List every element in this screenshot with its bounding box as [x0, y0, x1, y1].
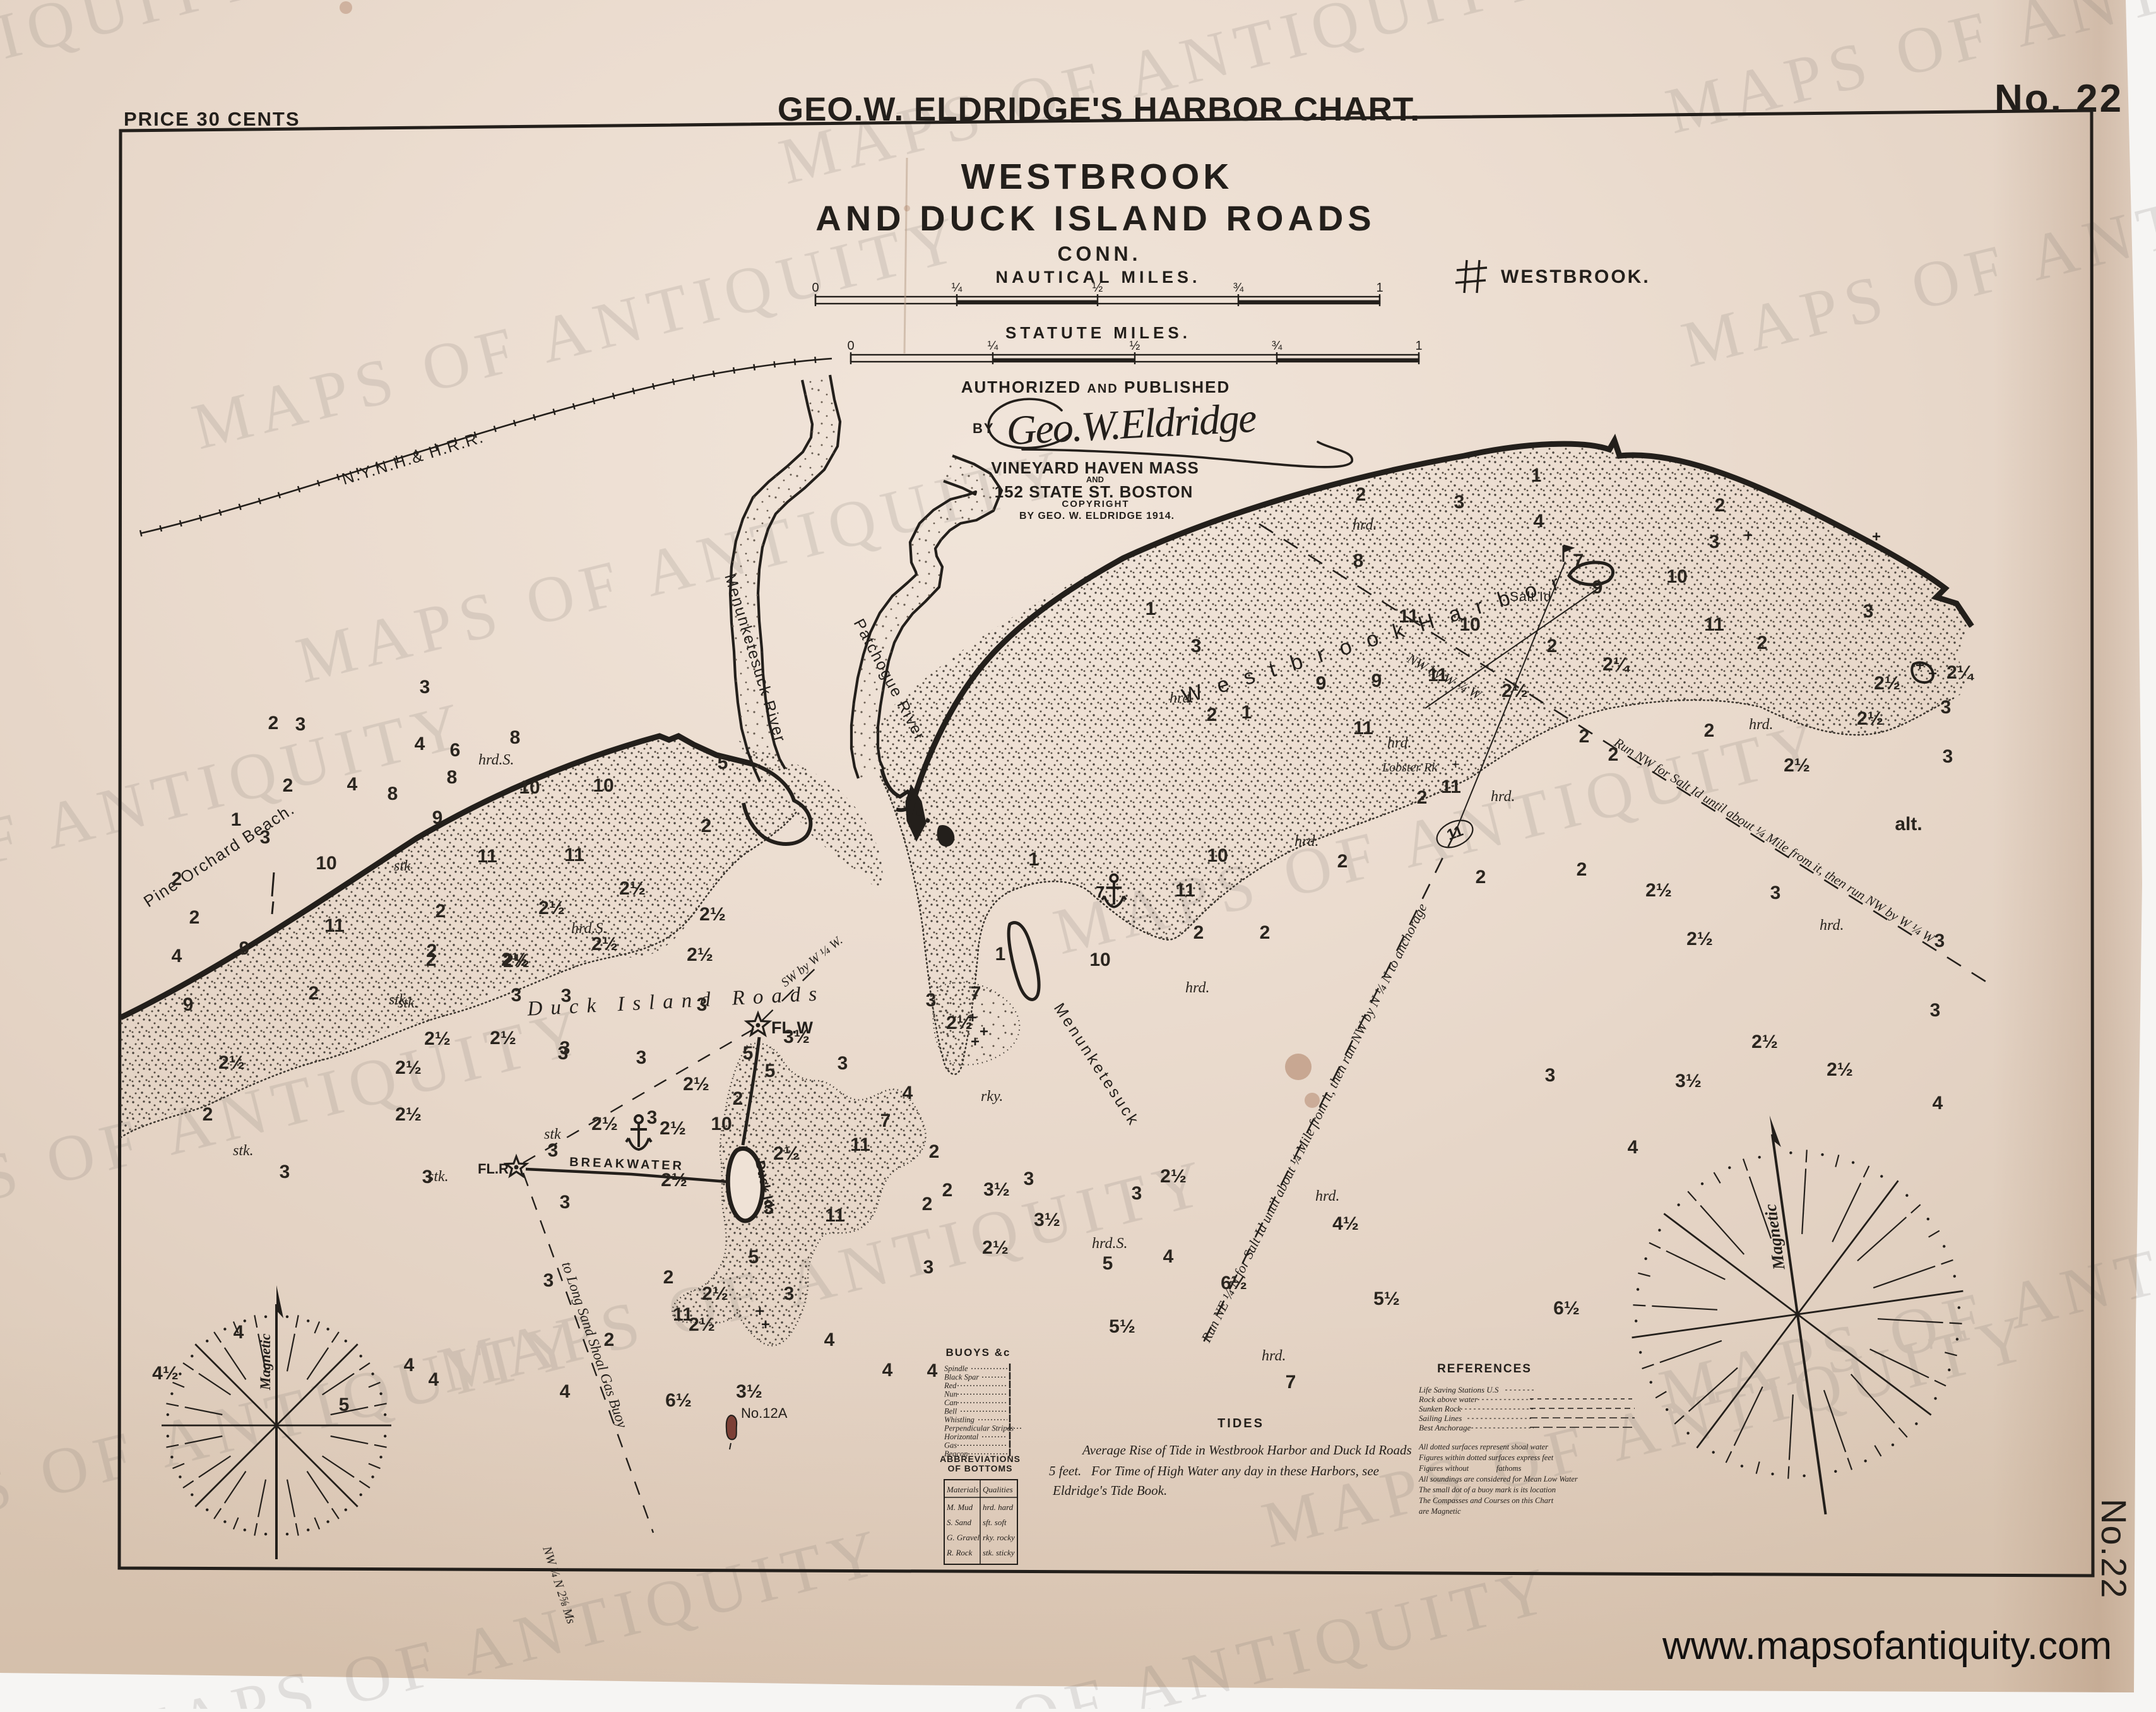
svg-text:4: 4: [1933, 1093, 1943, 1114]
svg-text:stk.: stk.: [389, 992, 410, 1008]
svg-text:10: 10: [316, 853, 336, 874]
svg-text:alt.: alt.: [1895, 814, 1922, 835]
svg-text:3: 3: [1863, 601, 1874, 622]
svg-text:3: 3: [1709, 532, 1720, 552]
svg-text:3½: 3½: [1675, 1071, 1702, 1091]
svg-text:Figures without f: Figures without fathoms: [1418, 1464, 1522, 1473]
svg-text:5 feet. For Time of High Wat: 5 feet. For Time of High Water any day i…: [1049, 1463, 1379, 1478]
svg-text:1: 1: [1415, 339, 1422, 353]
svg-text:6½: 6½: [665, 1390, 692, 1411]
svg-text:¼: ¼: [952, 281, 962, 295]
svg-text:rky.: rky.: [981, 1088, 1003, 1105]
svg-text:2: 2: [283, 775, 293, 796]
svg-text:3: 3: [1934, 930, 1945, 951]
svg-text:11: 11: [1175, 880, 1195, 901]
svg-text:hrd.: hrd.: [1820, 917, 1844, 934]
svg-text:Best Anchorage: Best Anchorage: [1419, 1423, 1471, 1432]
svg-text:Average Rise of Tide in Westbr: Average Rise of Tide in Westbrook Harbor…: [1081, 1442, 1412, 1458]
svg-text:Salt Id: Salt Id: [1510, 590, 1552, 604]
svg-text:¼: ¼: [988, 339, 998, 353]
svg-text:3: 3: [923, 1257, 934, 1278]
svg-text:3½: 3½: [783, 1026, 810, 1047]
svg-text:7: 7: [1096, 883, 1105, 901]
svg-text:4: 4: [903, 1083, 913, 1103]
svg-text:6½: 6½: [1221, 1273, 1247, 1293]
svg-text:hrd.S.: hrd.S.: [571, 920, 607, 937]
svg-text:3: 3: [1132, 1183, 1142, 1204]
svg-text:2½: 2½: [702, 1283, 728, 1304]
svg-text:11: 11: [1428, 665, 1448, 686]
svg-text:2: 2: [1417, 787, 1428, 808]
svg-text:2: 2: [203, 1104, 213, 1125]
svg-text:8: 8: [388, 783, 398, 804]
svg-text:9: 9: [1316, 673, 1327, 694]
svg-text:No.22: No.22: [2094, 1499, 2134, 1599]
svg-text:2: 2: [1579, 726, 1590, 747]
svg-text:TIDES: TIDES: [1217, 1417, 1264, 1430]
svg-text:REFERENCES: REFERENCES: [1437, 1362, 1532, 1376]
svg-text:Nun: Nun: [944, 1390, 957, 1399]
svg-text:3: 3: [1191, 636, 1202, 657]
svg-text:stk: stk: [394, 858, 411, 874]
svg-text:4: 4: [882, 1360, 893, 1381]
svg-text:BUOYS &c: BUOYS &c: [946, 1346, 1011, 1358]
svg-text:2½: 2½: [1645, 880, 1672, 901]
svg-text:2: 2: [1547, 636, 1558, 657]
svg-text:7: 7: [1286, 1372, 1296, 1393]
svg-text:2: 2: [1704, 720, 1715, 741]
svg-text:8: 8: [447, 767, 458, 788]
svg-text:2: 2: [604, 1329, 615, 1350]
svg-text:5½: 5½: [1373, 1288, 1400, 1309]
svg-text:3: 3: [1454, 492, 1465, 513]
svg-text:2½: 2½: [501, 949, 528, 970]
svg-text:3: 3: [1770, 883, 1781, 903]
svg-text:5: 5: [749, 1247, 759, 1268]
svg-text:S. Sand: S. Sand: [947, 1518, 972, 1527]
svg-text:+: +: [1744, 527, 1753, 544]
svg-text:¾: ¾: [1233, 281, 1244, 295]
svg-text:Gas: Gas: [944, 1441, 957, 1450]
svg-text:WESTBROOK.: WESTBROOK.: [1501, 266, 1650, 287]
svg-text:FL.R: FL.R: [478, 1161, 509, 1177]
svg-text:10: 10: [1089, 949, 1110, 970]
svg-text:11: 11: [1704, 614, 1724, 635]
svg-text:2½: 2½: [1784, 755, 1810, 776]
svg-text:stk.: stk.: [233, 1143, 254, 1159]
svg-text:2½: 2½: [1874, 673, 1900, 694]
svg-text:4: 4: [347, 774, 358, 795]
svg-text:2½: 2½: [660, 1118, 686, 1139]
svg-text:Eldridge's Tide Book.: Eldridge's Tide Book.: [1052, 1483, 1167, 1498]
svg-text:3: 3: [697, 994, 708, 1015]
svg-text:1: 1: [995, 944, 1006, 965]
svg-text:4: 4: [824, 1329, 835, 1350]
svg-text:hrd.: hrd.: [1387, 735, 1411, 751]
svg-text:Spindle: Spindle: [944, 1364, 968, 1373]
svg-text:2½: 2½: [591, 1114, 618, 1134]
svg-text:1: 1: [1531, 465, 1542, 486]
svg-text:5: 5: [1103, 1253, 1113, 1274]
svg-text:4½: 4½: [152, 1363, 179, 1384]
svg-text:2½: 2½: [1827, 1059, 1853, 1080]
svg-text:1: 1: [231, 809, 242, 830]
svg-text:9: 9: [1371, 670, 1382, 691]
svg-text:11: 11: [1441, 776, 1461, 797]
svg-text:2¼: 2¼: [1946, 662, 1975, 683]
svg-text:9: 9: [183, 994, 194, 1015]
svg-text:Black Spar: Black Spar: [944, 1373, 979, 1382]
svg-text:3: 3: [548, 1140, 559, 1161]
svg-text:No. 22: No. 22: [1994, 77, 2123, 121]
svg-text:6½: 6½: [1553, 1298, 1580, 1319]
svg-text:2: 2: [663, 1267, 674, 1288]
svg-text:+: +: [971, 1033, 980, 1050]
svg-text:3: 3: [558, 1043, 569, 1064]
svg-text:11: 11: [825, 1205, 845, 1226]
svg-text:2½: 2½: [773, 1143, 800, 1164]
svg-text:3: 3: [647, 1107, 658, 1128]
svg-text:9: 9: [432, 807, 443, 828]
svg-text:2½: 2½: [687, 944, 713, 965]
svg-text:2: 2: [1757, 633, 1768, 653]
svg-text:Qualities: Qualities: [983, 1485, 1013, 1494]
svg-text:2: 2: [189, 907, 200, 928]
svg-text:4: 4: [172, 946, 182, 966]
svg-text:2: 2: [1476, 867, 1486, 888]
svg-text:3: 3: [280, 1162, 290, 1182]
svg-text:2: 2: [1337, 851, 1348, 872]
svg-text:8: 8: [510, 727, 521, 748]
svg-text:11: 11: [673, 1304, 693, 1325]
svg-text:½: ½: [1093, 281, 1103, 295]
svg-text:OF BOTTOMS: OF BOTTOMS: [947, 1463, 1012, 1473]
svg-text:9: 9: [1592, 577, 1603, 598]
svg-text:hrd.: hrd.: [1749, 716, 1773, 733]
svg-text:9: 9: [239, 938, 250, 959]
svg-text:M. Mud: M. Mud: [946, 1502, 973, 1512]
svg-text:+: +: [761, 1316, 770, 1333]
svg-text:hrd.: hrd.: [1170, 690, 1193, 706]
svg-text:2½: 2½: [661, 1170, 687, 1191]
svg-text:11: 11: [324, 915, 345, 936]
svg-text:3½: 3½: [736, 1381, 762, 1402]
svg-text:5: 5: [718, 752, 728, 773]
svg-text:3: 3: [511, 985, 522, 1006]
svg-text:¾: ¾: [1272, 339, 1282, 353]
svg-text:1: 1: [1376, 281, 1383, 295]
svg-text:hrd. hard: hrd. hard: [983, 1502, 1014, 1512]
svg-text:11: 11: [1353, 718, 1373, 739]
svg-text:stk: stk: [544, 1126, 561, 1143]
svg-text:hrd.: hrd.: [1294, 833, 1318, 850]
svg-text:10: 10: [1666, 566, 1687, 587]
svg-text:stk. sticky: stk. sticky: [983, 1548, 1015, 1557]
svg-text:2½: 2½: [1501, 681, 1528, 701]
svg-text:4: 4: [429, 1369, 439, 1390]
svg-text:1: 1: [1029, 849, 1039, 870]
svg-text:2½: 2½: [218, 1052, 245, 1073]
svg-text:2: 2: [1193, 922, 1204, 943]
svg-text:2: 2: [733, 1088, 743, 1109]
svg-text:2: 2: [942, 1180, 953, 1201]
svg-text:No.12A: No.12A: [741, 1405, 788, 1421]
svg-text:3½: 3½: [983, 1179, 1010, 1200]
svg-text:11: 11: [1399, 606, 1419, 627]
svg-text:1: 1: [1241, 702, 1252, 723]
svg-text:hrd.S.: hrd.S.: [1092, 1235, 1127, 1252]
svg-text:hrd.: hrd.: [1315, 1188, 1339, 1204]
svg-text:7: 7: [971, 983, 981, 1004]
svg-text:Sailing Lines: Sailing Lines: [1419, 1413, 1462, 1423]
svg-text:2: 2: [172, 869, 182, 889]
svg-text:Magnetic: Magnetic: [258, 1334, 273, 1391]
svg-text:2½: 2½: [424, 1028, 451, 1049]
svg-text:2½: 2½: [683, 1074, 709, 1095]
svg-text:3: 3: [1545, 1065, 1556, 1086]
svg-text:2: 2: [1260, 922, 1270, 943]
svg-text:2½: 2½: [619, 878, 646, 899]
svg-text:CONN.: CONN.: [1057, 242, 1141, 265]
svg-text:4: 4: [560, 1381, 571, 1402]
svg-text:4: 4: [404, 1355, 415, 1376]
svg-text:are Magnetic: are Magnetic: [1419, 1507, 1461, 1516]
svg-text:4: 4: [1163, 1246, 1174, 1267]
svg-text:3: 3: [784, 1283, 795, 1304]
svg-text:2: 2: [1577, 859, 1587, 880]
svg-text:+: +: [1452, 756, 1460, 772]
svg-text:3½: 3½: [1034, 1210, 1060, 1230]
svg-text:½: ½: [1130, 339, 1140, 353]
svg-text:COPYRIGHT: COPYRIGHT: [1062, 499, 1129, 509]
svg-text:3: 3: [838, 1053, 848, 1074]
svg-text:2½: 2½: [699, 904, 726, 925]
svg-text:The Compasses and Courses on t: The Compasses and Courses on this Chart: [1419, 1496, 1554, 1505]
svg-text:3: 3: [1930, 1000, 1941, 1021]
svg-text:11: 11: [850, 1134, 870, 1155]
svg-text:3: 3: [764, 1198, 774, 1218]
svg-text:2½: 2½: [1686, 929, 1713, 949]
svg-text:AND DUCK ISLAND ROADS: AND DUCK ISLAND ROADS: [815, 198, 1375, 238]
svg-text:0: 0: [812, 281, 819, 295]
svg-text:ABBREVIATIONS: ABBREVIATIONS: [940, 1454, 1021, 1464]
svg-text:2½: 2½: [1160, 1166, 1187, 1187]
svg-text:2½: 2½: [982, 1237, 1009, 1258]
svg-text:WESTBROOK: WESTBROOK: [961, 157, 1233, 197]
svg-text:+: +: [980, 1023, 988, 1040]
svg-text:+: +: [1872, 528, 1881, 545]
svg-text:Perpendicular Stripes: Perpendicular Stripes: [944, 1424, 1014, 1433]
svg-text:11: 11: [564, 845, 584, 865]
svg-text:2¼: 2¼: [1602, 654, 1631, 675]
svg-text:The small dot of a buoy mark i: The small dot of a buoy mark is its loca…: [1419, 1485, 1556, 1494]
svg-text:rky. rocky: rky. rocky: [983, 1533, 1015, 1542]
svg-text:2: 2: [268, 713, 279, 734]
svg-text:10: 10: [1459, 614, 1480, 635]
svg-text:Bell: Bell: [944, 1407, 957, 1416]
svg-text:G. Gravel: G. Gravel: [947, 1533, 980, 1542]
svg-text:8: 8: [1353, 550, 1364, 571]
svg-text:2: 2: [1715, 495, 1726, 516]
svg-text:1: 1: [1146, 598, 1156, 619]
svg-text:6: 6: [450, 740, 461, 761]
svg-text:2½: 2½: [395, 1104, 422, 1125]
svg-text:2½: 2½: [1751, 1031, 1778, 1052]
svg-text:4: 4: [927, 1360, 938, 1381]
svg-text:2½: 2½: [395, 1057, 422, 1078]
svg-text:STATUTE MILES.: STATUTE MILES.: [1005, 323, 1191, 342]
svg-text:10: 10: [711, 1114, 731, 1134]
svg-text:10: 10: [593, 775, 613, 796]
svg-text:Red: Red: [944, 1381, 957, 1390]
svg-text:Materials: Materials: [946, 1485, 979, 1494]
svg-text:3: 3: [1943, 746, 1953, 767]
svg-text:2: 2: [435, 901, 446, 922]
svg-text:2: 2: [701, 816, 712, 836]
svg-text:5: 5: [765, 1061, 776, 1081]
svg-text:Horizontal: Horizontal: [944, 1432, 979, 1441]
svg-text:Rock above water: Rock above water: [1418, 1394, 1478, 1404]
svg-text:2: 2: [1356, 484, 1366, 505]
svg-text:3: 3: [295, 714, 306, 735]
svg-text:Whistling: Whistling: [944, 1415, 974, 1424]
svg-text:3: 3: [560, 1192, 571, 1213]
svg-text:4: 4: [1628, 1137, 1638, 1158]
svg-text:PRICE 30 CENTS: PRICE 30 CENTS: [124, 108, 300, 130]
svg-text:hrd.S.: hrd.S.: [478, 752, 514, 768]
svg-text:7: 7: [1573, 550, 1584, 571]
svg-text:0: 0: [847, 339, 854, 353]
svg-text:4: 4: [415, 734, 425, 754]
svg-text:3: 3: [1024, 1168, 1034, 1189]
svg-text:11: 11: [477, 846, 497, 867]
svg-text:Sunken Rock: Sunken Rock: [1419, 1404, 1461, 1413]
svg-text:2: 2: [1608, 744, 1619, 765]
svg-text:R. Rock: R. Rock: [946, 1548, 973, 1557]
svg-text:Lobster Rk: Lobster Rk: [1382, 761, 1438, 775]
svg-text:sft. soft: sft. soft: [983, 1518, 1007, 1527]
svg-text:Figures within dotted surfaces: Figures within dotted surfaces express f…: [1418, 1453, 1554, 1462]
svg-text:2½: 2½: [1857, 708, 1883, 729]
svg-text:Life Saving Stations U.S: Life Saving Stations U.S: [1418, 1385, 1499, 1394]
svg-text:2½: 2½: [538, 898, 565, 918]
svg-text:3: 3: [420, 677, 430, 698]
svg-text:All soundings are considered f: All soundings are considered for Mean Lo…: [1418, 1475, 1578, 1483]
svg-text:2: 2: [309, 983, 319, 1004]
svg-text:hrd.: hrd.: [1262, 1348, 1286, 1364]
svg-text:3: 3: [636, 1047, 647, 1068]
svg-text:hrd.: hrd.: [1491, 788, 1515, 805]
svg-text:3: 3: [561, 985, 572, 1006]
svg-text:3: 3: [543, 1270, 554, 1291]
svg-text:4: 4: [1534, 511, 1544, 532]
svg-text:10: 10: [519, 777, 540, 798]
svg-text:BY GEO. W. ELDRIDGE 1914.: BY GEO. W. ELDRIDGE 1914.: [1019, 511, 1175, 521]
svg-text:4½: 4½: [1332, 1213, 1359, 1234]
svg-text:3: 3: [1941, 697, 1952, 718]
svg-text:2: 2: [929, 1141, 940, 1162]
svg-text:10: 10: [1207, 845, 1228, 866]
svg-text:+: +: [1916, 657, 1924, 674]
svg-text:2: 2: [922, 1194, 933, 1215]
svg-text:www.mapsofantiquity.com: www.mapsofantiquity.com: [1662, 1624, 2112, 1668]
svg-text:hrd.: hrd.: [1185, 980, 1209, 996]
svg-text:2: 2: [1207, 704, 1217, 725]
svg-text:2½: 2½: [490, 1028, 516, 1049]
svg-text:7: 7: [880, 1110, 891, 1131]
svg-text:3: 3: [260, 827, 271, 848]
svg-text:stk.: stk.: [428, 1168, 449, 1185]
svg-text:2: 2: [427, 941, 437, 961]
svg-text:3: 3: [926, 990, 937, 1011]
svg-text:5: 5: [743, 1043, 754, 1064]
svg-text:GEO.W. ELDRIDGE'S HARBOR CHART: GEO.W. ELDRIDGE'S HARBOR CHART.: [778, 91, 1420, 128]
svg-text:5½: 5½: [1109, 1316, 1135, 1337]
svg-text:Can: Can: [944, 1398, 957, 1407]
svg-text:2½: 2½: [946, 1013, 973, 1033]
svg-text:hrd.: hrd.: [1353, 517, 1377, 533]
svg-text:All dotted surfaces represent: All dotted surfaces represent shoal wate…: [1418, 1442, 1548, 1451]
